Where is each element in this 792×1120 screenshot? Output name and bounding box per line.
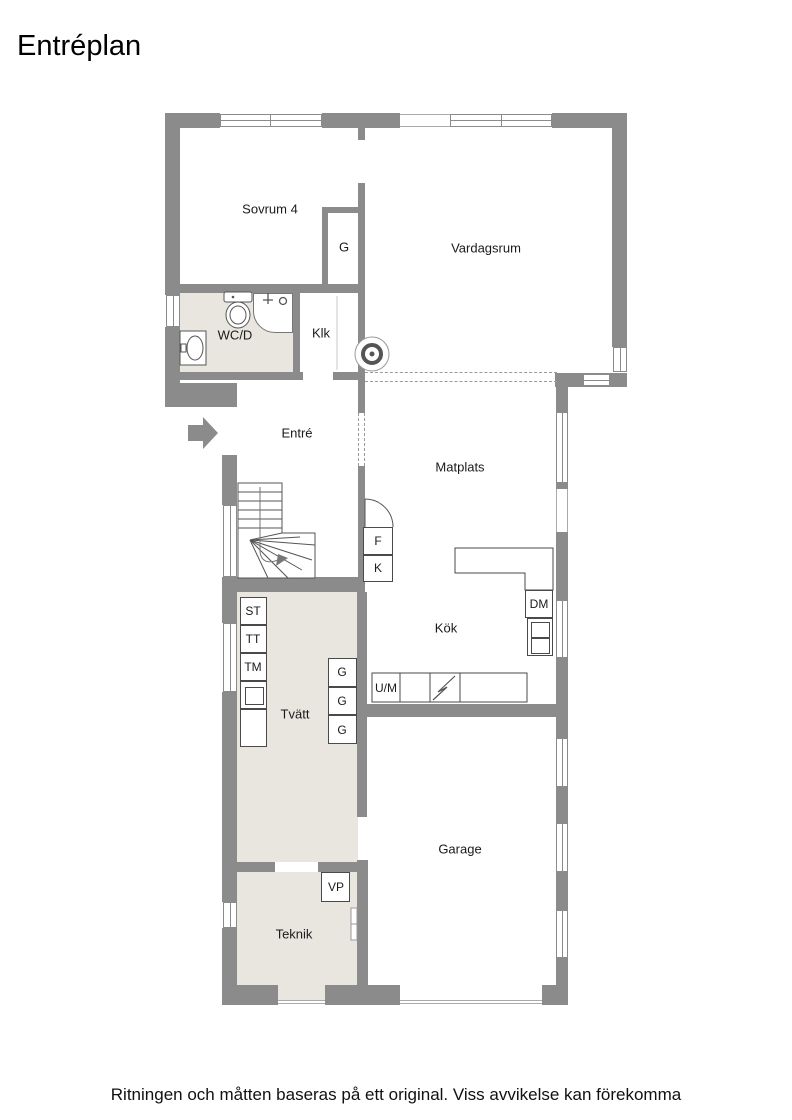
- fixture-label-tm: TM: [244, 660, 261, 674]
- shower-tap-icon: [263, 293, 287, 305]
- teknik-door-leaf: [351, 908, 357, 940]
- disclaimer-text: Ritningen och måtten baseras på ett orig…: [0, 1085, 792, 1105]
- fixture-label-dm: DM: [530, 597, 549, 611]
- room-label-tvatt: Tvätt: [281, 707, 310, 722]
- fixture-label-g2: G: [337, 694, 346, 708]
- fireplace-icon: [355, 337, 389, 371]
- room-label-garage: Garage: [438, 842, 481, 857]
- fixture-label-um: U/M: [375, 681, 397, 695]
- fixture-label-g3: G: [337, 723, 346, 737]
- fixture-label-g1: G: [337, 665, 346, 679]
- door-arc: [365, 499, 393, 527]
- washbasin-icon: [180, 331, 206, 365]
- fixture-label-g-sovrum: G: [339, 240, 349, 255]
- room-label-kok: Kök: [435, 621, 457, 636]
- fixture-label-f: F: [374, 534, 381, 548]
- fixture-label-st: ST: [245, 604, 260, 618]
- toilet-icon: [224, 292, 252, 328]
- room-label-sovrum4: Sovrum 4: [242, 202, 298, 217]
- room-label-wcd: WC/D: [218, 328, 253, 343]
- floorplan-page: Entréplan: [0, 0, 792, 1120]
- room-label-entre: Entré: [281, 426, 312, 441]
- fixture-graphics: [0, 0, 792, 1120]
- staircase: [238, 483, 315, 578]
- room-label-teknik: Teknik: [276, 927, 313, 942]
- room-label-vardagsrum: Vardagsrum: [451, 241, 521, 256]
- room-label-matplats: Matplats: [435, 460, 484, 475]
- entry-arrow-icon: [188, 417, 218, 449]
- kitchen-counter: [372, 548, 553, 702]
- fixture-label-tt: TT: [246, 632, 261, 646]
- fixture-label-k: K: [374, 561, 382, 575]
- room-label-klk: Klk: [312, 326, 330, 341]
- fixture-label-vp: VP: [328, 880, 344, 894]
- page-title: Entréplan: [17, 30, 141, 63]
